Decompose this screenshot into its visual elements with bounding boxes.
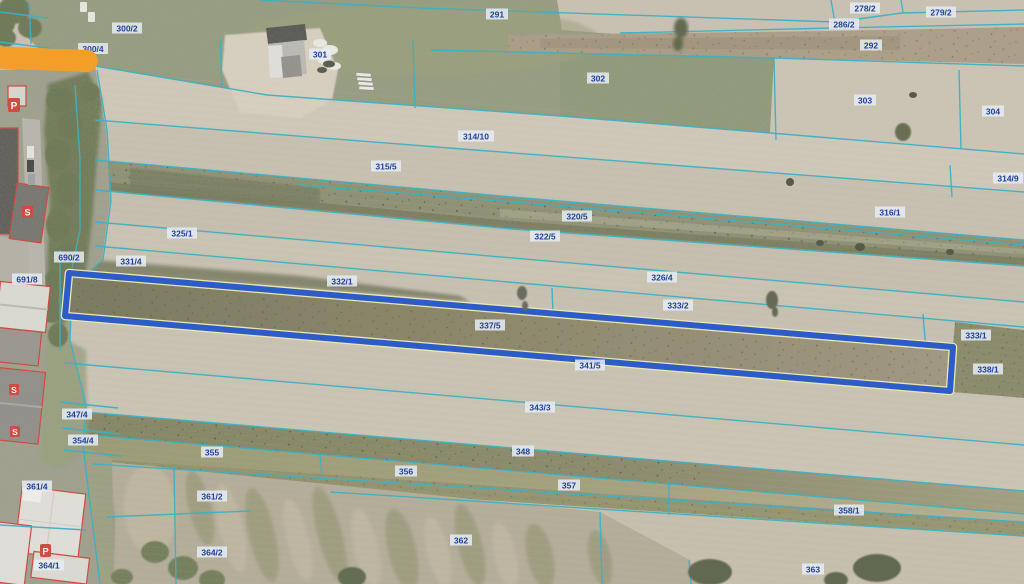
svg-text:325/1: 325/1 xyxy=(171,229,193,239)
svg-text:343/3: 343/3 xyxy=(529,403,551,413)
svg-text:362: 362 xyxy=(454,536,468,546)
svg-text:348: 348 xyxy=(516,447,530,457)
svg-text:320/5: 320/5 xyxy=(566,212,588,222)
svg-text:364/2: 364/2 xyxy=(201,548,223,558)
svg-text:278/2: 278/2 xyxy=(854,4,876,14)
svg-text:358/1: 358/1 xyxy=(838,506,860,516)
svg-text:302: 302 xyxy=(591,74,605,84)
svg-text:279/2: 279/2 xyxy=(930,8,952,18)
svg-text:322/5: 322/5 xyxy=(534,232,556,242)
svg-text:300/2: 300/2 xyxy=(116,24,138,34)
svg-text:314/9: 314/9 xyxy=(997,174,1019,184)
svg-text:691/8: 691/8 xyxy=(16,275,38,285)
svg-text:338/1: 338/1 xyxy=(977,365,999,375)
svg-text:333/2: 333/2 xyxy=(667,301,689,311)
svg-text:690/2: 690/2 xyxy=(58,253,80,263)
svg-text:356: 356 xyxy=(399,467,413,477)
svg-text:314/10: 314/10 xyxy=(463,132,489,142)
svg-text:315/5: 315/5 xyxy=(375,162,397,172)
svg-text:303: 303 xyxy=(858,96,872,106)
svg-text:292: 292 xyxy=(864,41,878,51)
svg-text:291: 291 xyxy=(490,10,504,20)
svg-text:286/2: 286/2 xyxy=(833,20,855,30)
svg-text:361/2: 361/2 xyxy=(201,492,223,502)
svg-text:331/4: 331/4 xyxy=(120,257,142,267)
svg-text:363: 363 xyxy=(806,565,820,575)
svg-text:316/1: 316/1 xyxy=(879,208,901,218)
svg-text:354/4: 354/4 xyxy=(72,436,94,446)
svg-text:357: 357 xyxy=(562,481,576,491)
svg-text:361/4: 361/4 xyxy=(26,482,48,492)
svg-text:301: 301 xyxy=(313,50,327,60)
svg-text:304: 304 xyxy=(986,107,1000,117)
svg-text:333/1: 333/1 xyxy=(965,331,987,341)
svg-text:326/4: 326/4 xyxy=(651,273,673,283)
svg-text:332/1: 332/1 xyxy=(331,277,353,287)
svg-text:355: 355 xyxy=(205,448,219,458)
svg-text:347/4: 347/4 xyxy=(66,410,88,420)
svg-text:341/5: 341/5 xyxy=(579,361,601,371)
svg-text:364/1: 364/1 xyxy=(38,561,60,571)
svg-text:337/5: 337/5 xyxy=(479,321,501,331)
